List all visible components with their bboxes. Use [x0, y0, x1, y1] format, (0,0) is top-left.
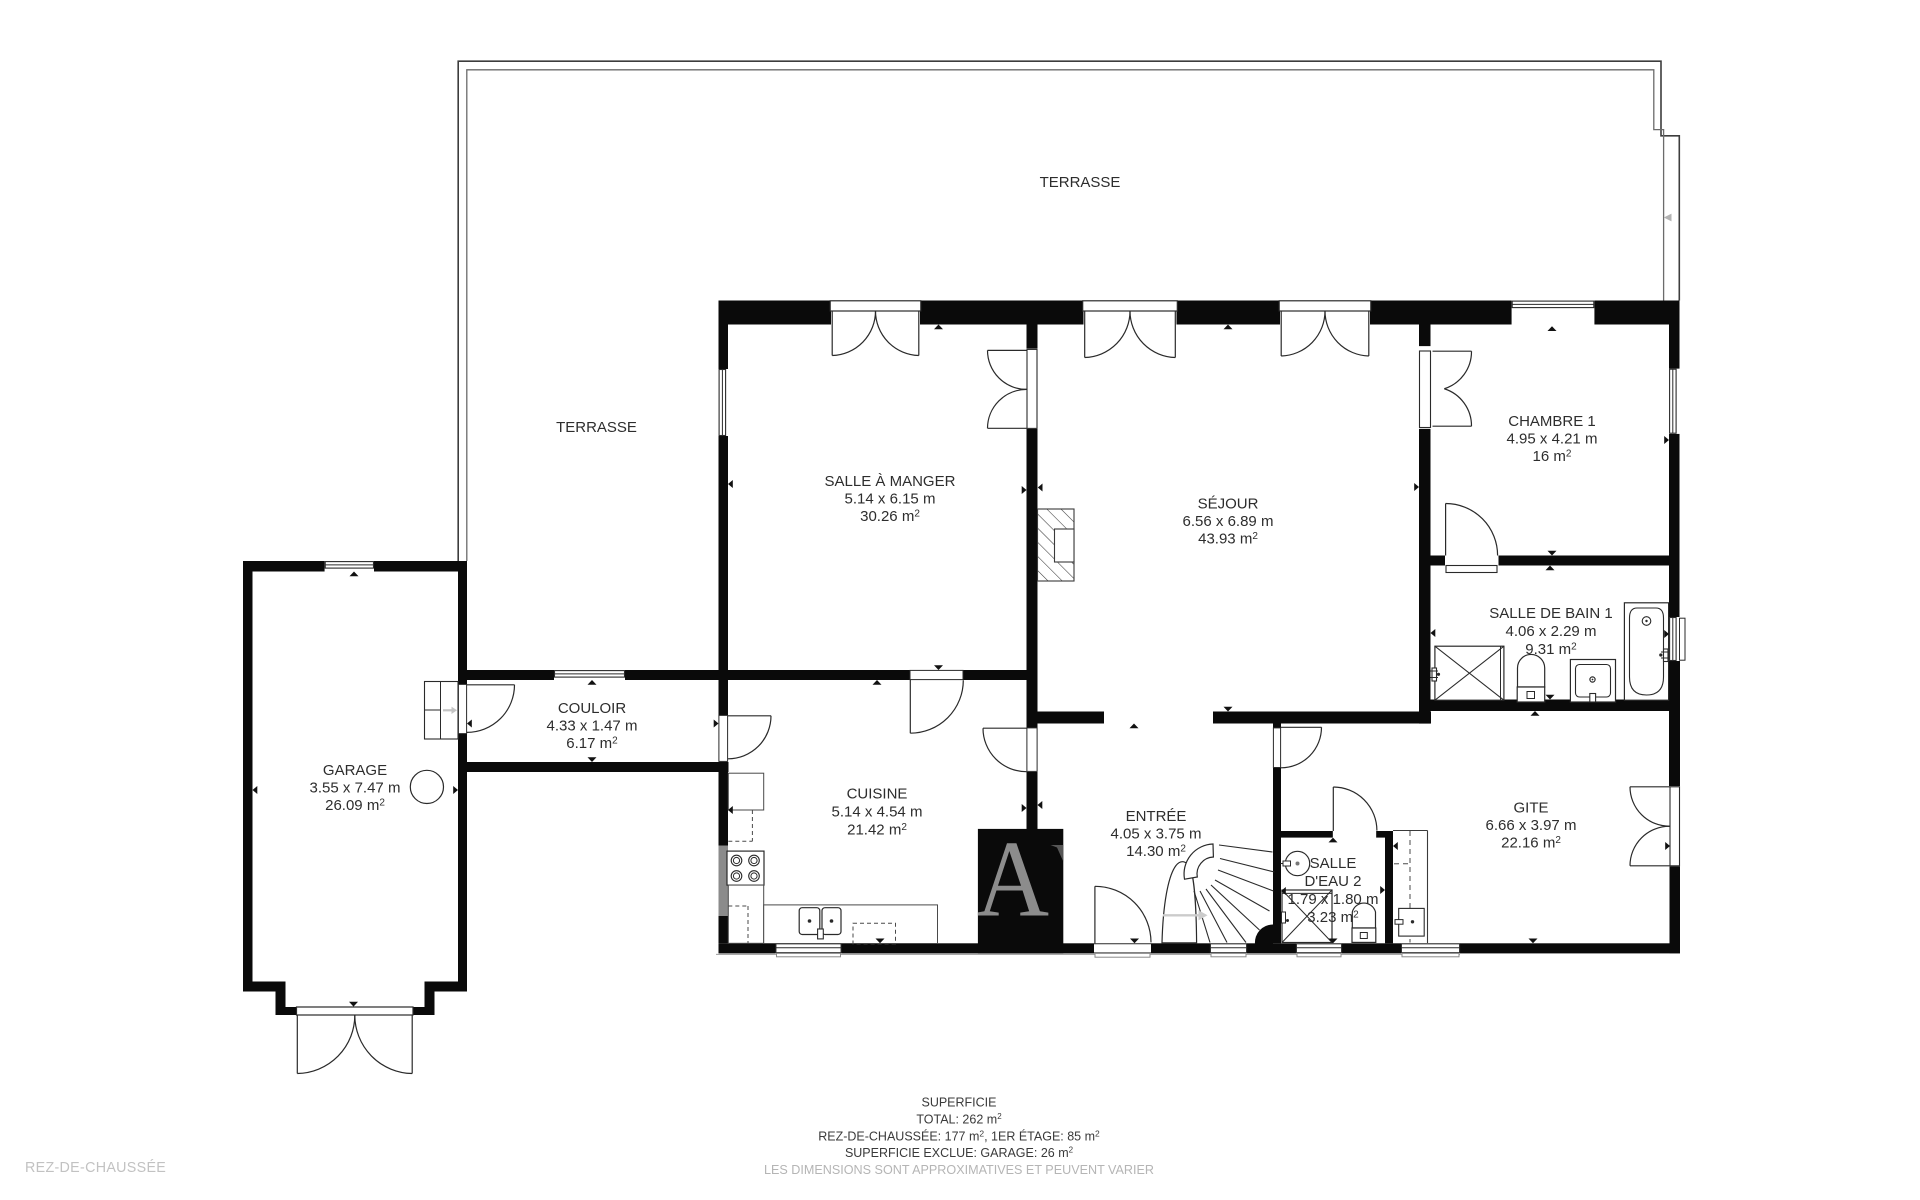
svg-text:CHAMBRE 1: CHAMBRE 1 [1508, 413, 1596, 430]
svg-text:SUPERFICIE EXCLUE: GARAGE: 26: SUPERFICIE EXCLUE: GARAGE: 26 m2 [845, 1146, 1074, 1161]
svg-text:21.42 m2: 21.42 m2 [847, 822, 907, 839]
svg-text:REZ-DE-CHAUSSÉE: REZ-DE-CHAUSSÉE [25, 1159, 166, 1176]
svg-text:6.66 x 3.97 m: 6.66 x 3.97 m [1486, 817, 1577, 834]
svg-text:3.55 x 7.47 m: 3.55 x 7.47 m [310, 780, 401, 797]
svg-text:9.31 m2: 9.31 m2 [1525, 641, 1577, 658]
svg-text:3.23 m2: 3.23 m2 [1307, 909, 1359, 926]
svg-text:4.33 x 1.47 m: 4.33 x 1.47 m [547, 718, 638, 735]
svg-text:D'EAU 2: D'EAU 2 [1304, 873, 1361, 890]
svg-text:TERRASSE: TERRASSE [1040, 174, 1121, 191]
svg-text:TERRASSE: TERRASSE [556, 419, 637, 436]
svg-text:14.30 m2: 14.30 m2 [1126, 843, 1186, 860]
svg-text:5.14 x 4.54 m: 5.14 x 4.54 m [832, 804, 923, 821]
svg-text:SALLE DE BAIN 1: SALLE DE BAIN 1 [1489, 605, 1612, 622]
svg-text:TOTAL: 262 m2: TOTAL: 262 m2 [916, 1112, 1002, 1127]
svg-text:6.56 x 6.89 m: 6.56 x 6.89 m [1183, 513, 1274, 530]
svg-text:1.79 x 1.80 m: 1.79 x 1.80 m [1288, 891, 1379, 908]
svg-text:6.17 m2: 6.17 m2 [566, 735, 618, 752]
svg-text:COULOIR: COULOIR [558, 700, 627, 717]
svg-text:4.05 x 3.75 m: 4.05 x 3.75 m [1111, 825, 1202, 842]
svg-text:ENTRÉE: ENTRÉE [1126, 808, 1187, 825]
svg-text:43.93 m2: 43.93 m2 [1198, 531, 1258, 548]
svg-text:30.26 m2: 30.26 m2 [860, 508, 920, 525]
svg-text:26.09 m2: 26.09 m2 [325, 797, 385, 814]
svg-text:A: A [976, 818, 1049, 939]
svg-text:4.06 x 2.29 m: 4.06 x 2.29 m [1506, 623, 1597, 640]
svg-text:SÉJOUR: SÉJOUR [1198, 496, 1259, 513]
svg-text:22.16 m2: 22.16 m2 [1501, 835, 1561, 852]
svg-text:GARAGE: GARAGE [323, 762, 387, 779]
svg-text:SALLE: SALLE [1310, 855, 1357, 872]
svg-text:4.95 x 4.21 m: 4.95 x 4.21 m [1507, 431, 1598, 448]
svg-text:LES DIMENSIONS SONT APPROXIMAT: LES DIMENSIONS SONT APPROXIMATIVES ET PE… [764, 1163, 1154, 1177]
svg-text:SUPERFICIE: SUPERFICIE [921, 1096, 996, 1110]
svg-text:REZ-DE-CHAUSSÉE: 177 m2, 1ER É: REZ-DE-CHAUSSÉE: 177 m2, 1ER ÉTAGE: 85 m… [818, 1129, 1100, 1144]
svg-text:GITE: GITE [1513, 800, 1548, 817]
svg-text:CUISINE: CUISINE [847, 786, 908, 803]
svg-text:5.14 x 6.15 m: 5.14 x 6.15 m [845, 491, 936, 508]
svg-text:SALLE À MANGER: SALLE À MANGER [825, 473, 956, 490]
